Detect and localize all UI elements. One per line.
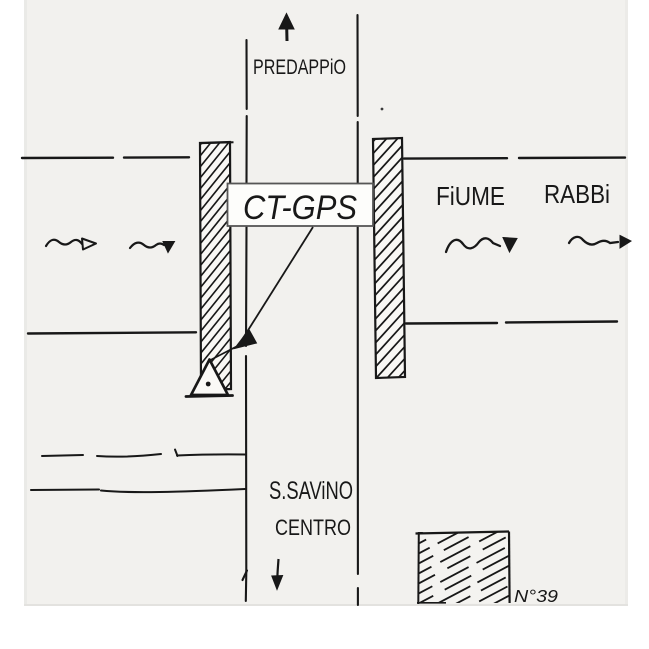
svg-text:CENTRO: CENTRO — [275, 515, 351, 540]
svg-text:RABBi: RABBi — [544, 179, 610, 209]
svg-text:S.SAViNO: S.SAViNO — [269, 477, 353, 505]
svg-text:CT-GPS: CT-GPS — [243, 189, 357, 227]
svg-text:PREDAPPiO: PREDAPPiO — [253, 56, 346, 79]
svg-text:FiUME: FiUME — [436, 181, 505, 211]
svg-text:N°39: N°39 — [514, 586, 558, 606]
